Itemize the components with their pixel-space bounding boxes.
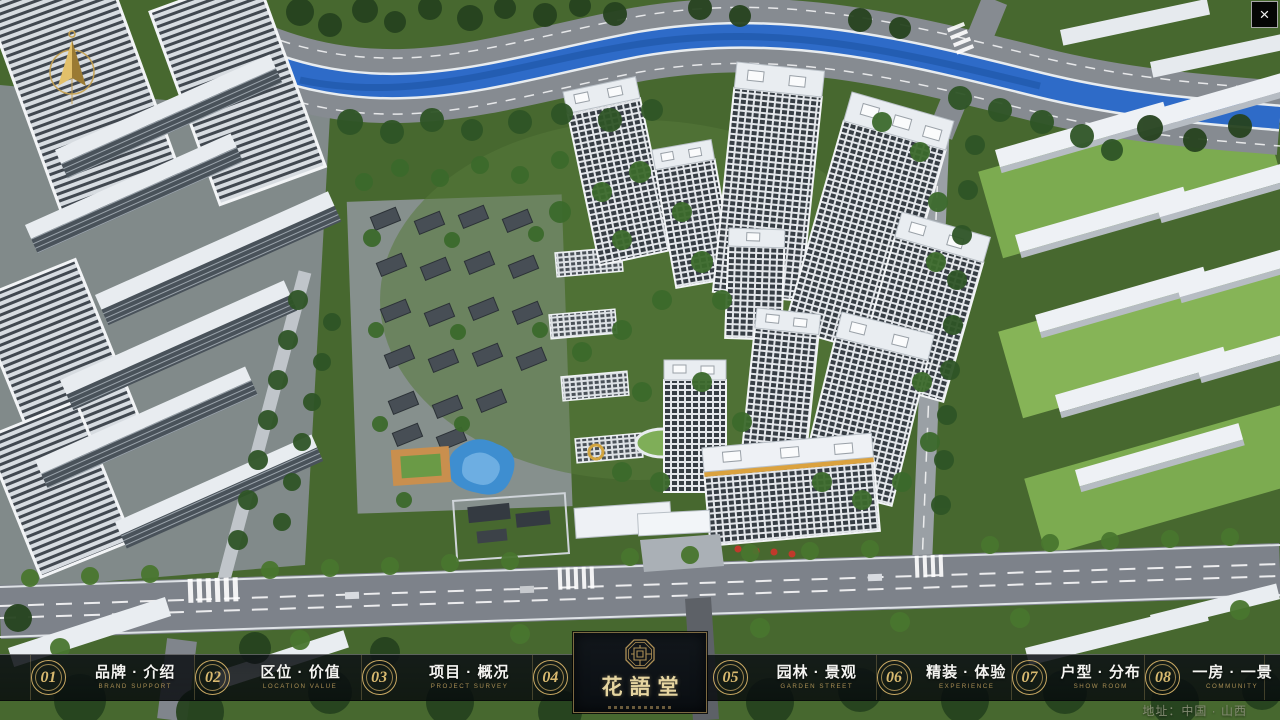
seal-icon <box>625 639 655 669</box>
nav-item-subtitle: EXPERIENCE <box>939 683 994 690</box>
item-number-badge: 01 <box>31 660 66 695</box>
nav-item-subtitle: GARDEN STREET <box>780 683 853 690</box>
nav-item-label: 品牌 · 介绍 <box>95 661 175 682</box>
nav-item-project[interactable]: 03 项目 · 概况 PROJECT SURVEY <box>362 655 533 700</box>
item-number-badge: 07 <box>1012 660 1047 695</box>
nav-item-label: 精装 · 体验 <box>926 661 1006 682</box>
nav-item-brand[interactable]: 01 品牌 · 介绍 BRAND SUPPORT <box>31 655 195 700</box>
item-number-badge: 04 <box>533 660 568 695</box>
item-number-badge: 02 <box>195 660 230 695</box>
project-name: 花語堂 <box>595 671 686 701</box>
close-button[interactable]: × <box>1251 1 1278 28</box>
address-text: 地址：中国 · 山西 <box>1142 702 1247 719</box>
logo-subtext <box>608 706 672 709</box>
nav-item-label: 园林 · 景观 <box>777 661 857 682</box>
nav-item-subtitle: COMMUNITY <box>1206 683 1258 690</box>
nav-group-right: 05 园林 · 景观 GARDEN STREET 06 精装 · 体验 EXPE… <box>713 655 1265 700</box>
nav-item-label: 项目 · 概况 <box>429 661 509 682</box>
nav-item-floorplan[interactable]: 07 户型 · 分布 SHOW ROOM <box>1011 655 1145 700</box>
nav-item-views[interactable]: 08 一房 · 一景 COMMUNITY <box>1144 655 1274 700</box>
nav-item-interior[interactable]: 06 精装 · 体验 EXPERIENCE <box>876 655 1011 700</box>
item-number-badge: 06 <box>877 660 912 695</box>
project-logo-panel[interactable]: 花語堂 <box>573 632 707 713</box>
nav-item-subtitle: BRAND SUPPORT <box>99 683 172 690</box>
map-scene[interactable] <box>0 0 1280 720</box>
aerial-render <box>0 0 1280 720</box>
nav-item-garden[interactable]: 05 园林 · 景观 GARDEN STREET <box>713 655 876 700</box>
nav-item-location[interactable]: 02 区位 · 价值 LOCATION VALUE <box>195 655 361 700</box>
item-number-badge: 05 <box>713 660 748 695</box>
nav-item-label: 一房 · 一景 <box>1192 661 1272 682</box>
nav-item-label: 户型 · 分布 <box>1061 661 1141 682</box>
close-icon: × <box>1260 6 1270 23</box>
compass-icon[interactable] <box>40 26 104 114</box>
nav-item-label: 区位 · 价值 <box>260 661 340 682</box>
nav-item-subtitle: LOCATION VALUE <box>263 683 338 690</box>
nav-group-left: 01 品牌 · 介绍 BRAND SUPPORT 02 区位 · 价值 LOCA… <box>30 655 569 700</box>
app-window: × 01 品牌 · 介绍 BRAND SUPPORT 02 区位 · 价值 LO… <box>0 0 1280 720</box>
nav-item-subtitle: PROJECT SURVEY <box>430 683 508 690</box>
item-number-badge: 03 <box>362 660 397 695</box>
nav-item-subtitle: SHOW ROOM <box>1074 683 1128 690</box>
item-number-badge: 08 <box>1145 660 1180 695</box>
